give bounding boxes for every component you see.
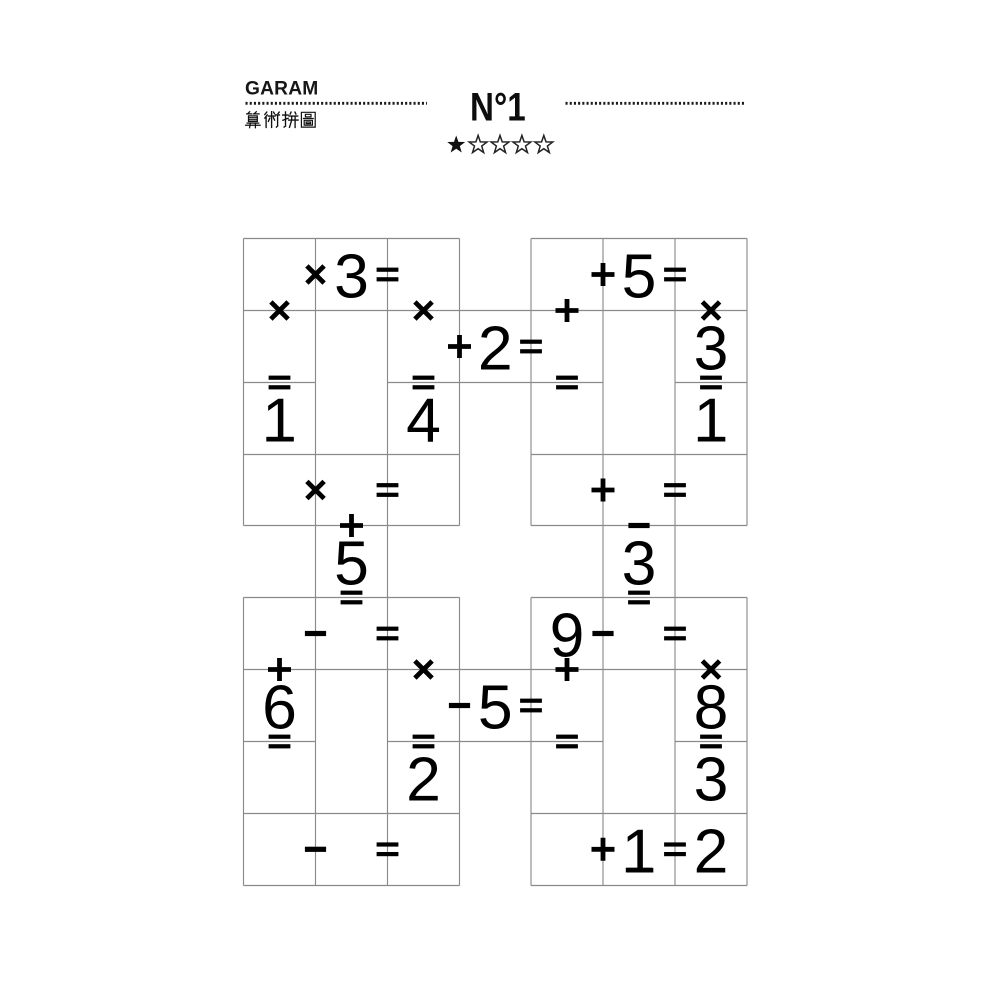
svg-text:5: 5 — [334, 529, 369, 599]
svg-text:1: 1 — [694, 386, 729, 456]
svg-text:GARAM: GARAM — [245, 79, 318, 100]
svg-text:3: 3 — [622, 529, 657, 599]
svg-text:N°1: N°1 — [470, 85, 526, 129]
svg-text:8: 8 — [694, 673, 729, 743]
svg-text:3: 3 — [694, 314, 729, 384]
svg-text:1: 1 — [622, 816, 657, 886]
svg-text:5: 5 — [622, 242, 657, 312]
svg-text:3: 3 — [334, 242, 369, 312]
svg-text:2: 2 — [406, 745, 441, 815]
svg-text:5: 5 — [478, 673, 513, 743]
svg-text:2: 2 — [694, 816, 729, 886]
svg-text:9: 9 — [550, 601, 585, 671]
svg-text:6: 6 — [262, 673, 297, 743]
svg-text:2: 2 — [478, 314, 513, 384]
svg-text:3: 3 — [694, 745, 729, 815]
svg-text:4: 4 — [406, 386, 441, 456]
svg-text:1: 1 — [262, 386, 297, 456]
